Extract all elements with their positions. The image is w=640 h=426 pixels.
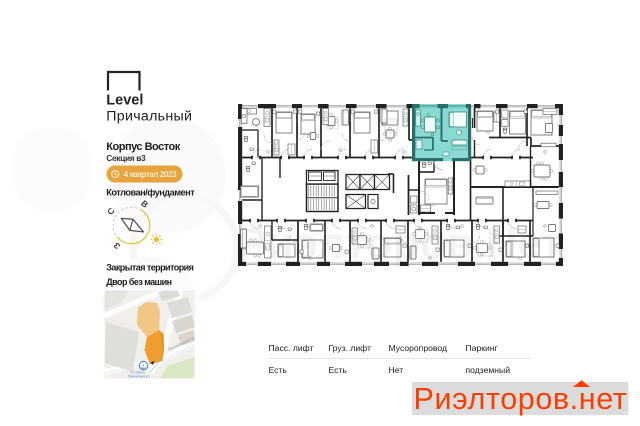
svg-text:Есть: Есть: [269, 365, 288, 375]
svg-text:Закрытая территория: Закрытая территория: [106, 263, 193, 273]
svg-text:Груз. лифт: Груз. лифт: [329, 343, 372, 353]
svg-text:Двор без машин: Двор без машин: [106, 277, 171, 287]
svg-text:Риэлторов.Нет: Риэлторов.Нет: [237, 219, 563, 268]
svg-text:Секция в3: Секция в3: [106, 153, 146, 163]
svg-text:Пасс. лифт: Пасс. лифт: [269, 343, 314, 353]
svg-text:Риэлторов.нет: Риэлторов.нет: [414, 382, 628, 416]
svg-text:Есть: Есть: [329, 365, 348, 375]
svg-text:Паркинг: Паркинг: [466, 343, 498, 353]
svg-text:⚓: ⚓: [140, 363, 146, 370]
svg-text:4 квартал 2023: 4 квартал 2023: [124, 170, 177, 179]
svg-text:Мусоропровод: Мусоропровод: [389, 343, 447, 353]
svg-text:Причальный: Причальный: [106, 109, 192, 125]
svg-text:подземный: подземный: [466, 365, 511, 375]
svg-text:Нет: Нет: [389, 365, 404, 375]
svg-text:Причального: Причального: [128, 375, 150, 379]
svg-text:Котлован/фундамент: Котлован/фундамент: [106, 188, 195, 198]
svg-text:Level: Level: [106, 93, 143, 109]
svg-text:Корпус Восток: Корпус Восток: [106, 141, 180, 153]
